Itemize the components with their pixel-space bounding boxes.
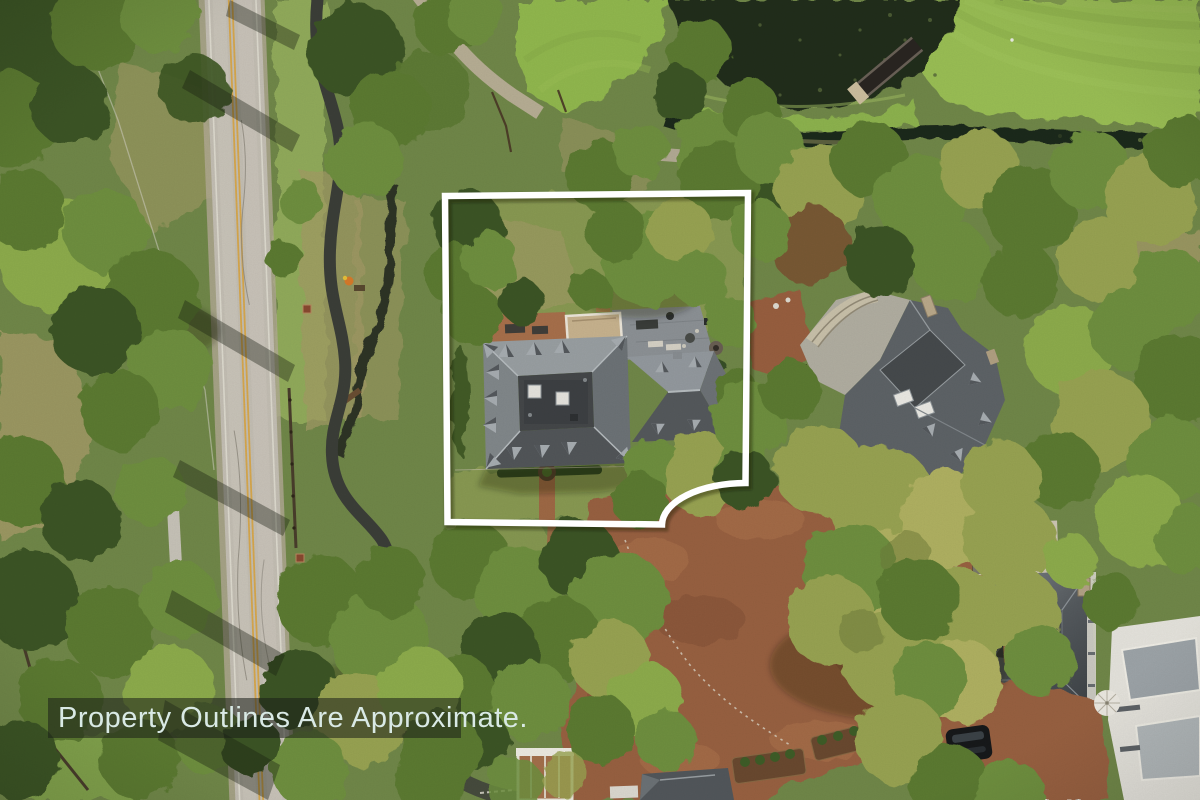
disclaimer-banner: Property Outlines Are Approximate.: [48, 698, 461, 738]
vignette: [0, 0, 1200, 800]
aerial-photo: Property Outlines Are Approximate.: [0, 0, 1200, 800]
disclaimer-text: Property Outlines Are Approximate.: [58, 702, 528, 734]
aerial-photo-canvas: [0, 0, 1200, 800]
